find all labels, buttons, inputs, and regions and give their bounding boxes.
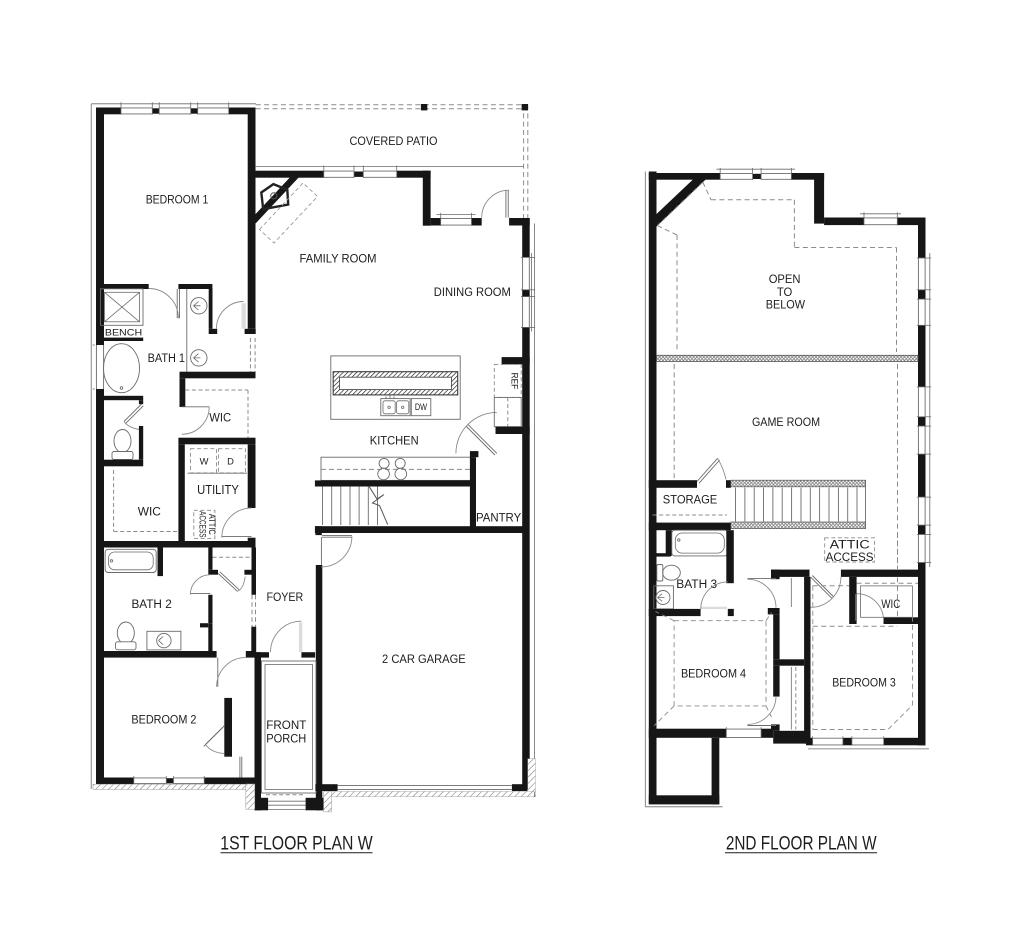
svg-text:2ND FLOOR PLAN W: 2ND FLOOR PLAN W bbox=[726, 832, 877, 854]
svg-text:BATH 3: BATH 3 bbox=[676, 577, 717, 591]
svg-text:W: W bbox=[200, 455, 209, 466]
svg-text:BELOW: BELOW bbox=[766, 298, 806, 312]
svg-text:PANTRY: PANTRY bbox=[476, 510, 521, 524]
svg-text:WIC: WIC bbox=[138, 505, 161, 519]
svg-text:ACCESS: ACCESS bbox=[826, 550, 874, 564]
svg-text:PORCH: PORCH bbox=[266, 731, 306, 745]
svg-text:REF: REF bbox=[509, 373, 519, 390]
svg-text:UTILITY: UTILITY bbox=[197, 482, 239, 497]
svg-text:BATH 2: BATH 2 bbox=[131, 597, 171, 611]
svg-text:1ST FLOOR PLAN W: 1ST FLOOR PLAN W bbox=[220, 832, 373, 854]
svg-text:BEDROOM 1: BEDROOM 1 bbox=[146, 192, 209, 206]
svg-text:ACCESS: ACCESS bbox=[198, 511, 208, 538]
svg-text:BEDROOM 2: BEDROOM 2 bbox=[131, 712, 196, 726]
svg-text:KITCHEN: KITCHEN bbox=[370, 433, 419, 447]
svg-text:BEDROOM 4: BEDROOM 4 bbox=[681, 667, 746, 681]
svg-text:STORAGE: STORAGE bbox=[663, 492, 718, 506]
svg-text:BENCH: BENCH bbox=[105, 327, 142, 338]
svg-text:BATH 1: BATH 1 bbox=[148, 351, 185, 365]
svg-text:FOYER: FOYER bbox=[266, 590, 303, 604]
svg-text:COVERED PATIO: COVERED PATIO bbox=[350, 134, 438, 148]
svg-text:FAMILY ROOM: FAMILY ROOM bbox=[300, 252, 377, 266]
svg-text:GAME ROOM: GAME ROOM bbox=[752, 415, 820, 429]
svg-text:D: D bbox=[227, 455, 234, 466]
svg-text:FRONT: FRONT bbox=[266, 718, 306, 732]
svg-text:WIC: WIC bbox=[881, 597, 900, 611]
svg-text:DINING ROOM: DINING ROOM bbox=[434, 285, 511, 299]
svg-text:WIC: WIC bbox=[209, 411, 231, 425]
svg-text:BEDROOM 3: BEDROOM 3 bbox=[832, 676, 896, 690]
svg-text:2 CAR GARAGE: 2 CAR GARAGE bbox=[382, 652, 466, 666]
svg-text:DW: DW bbox=[415, 402, 428, 412]
